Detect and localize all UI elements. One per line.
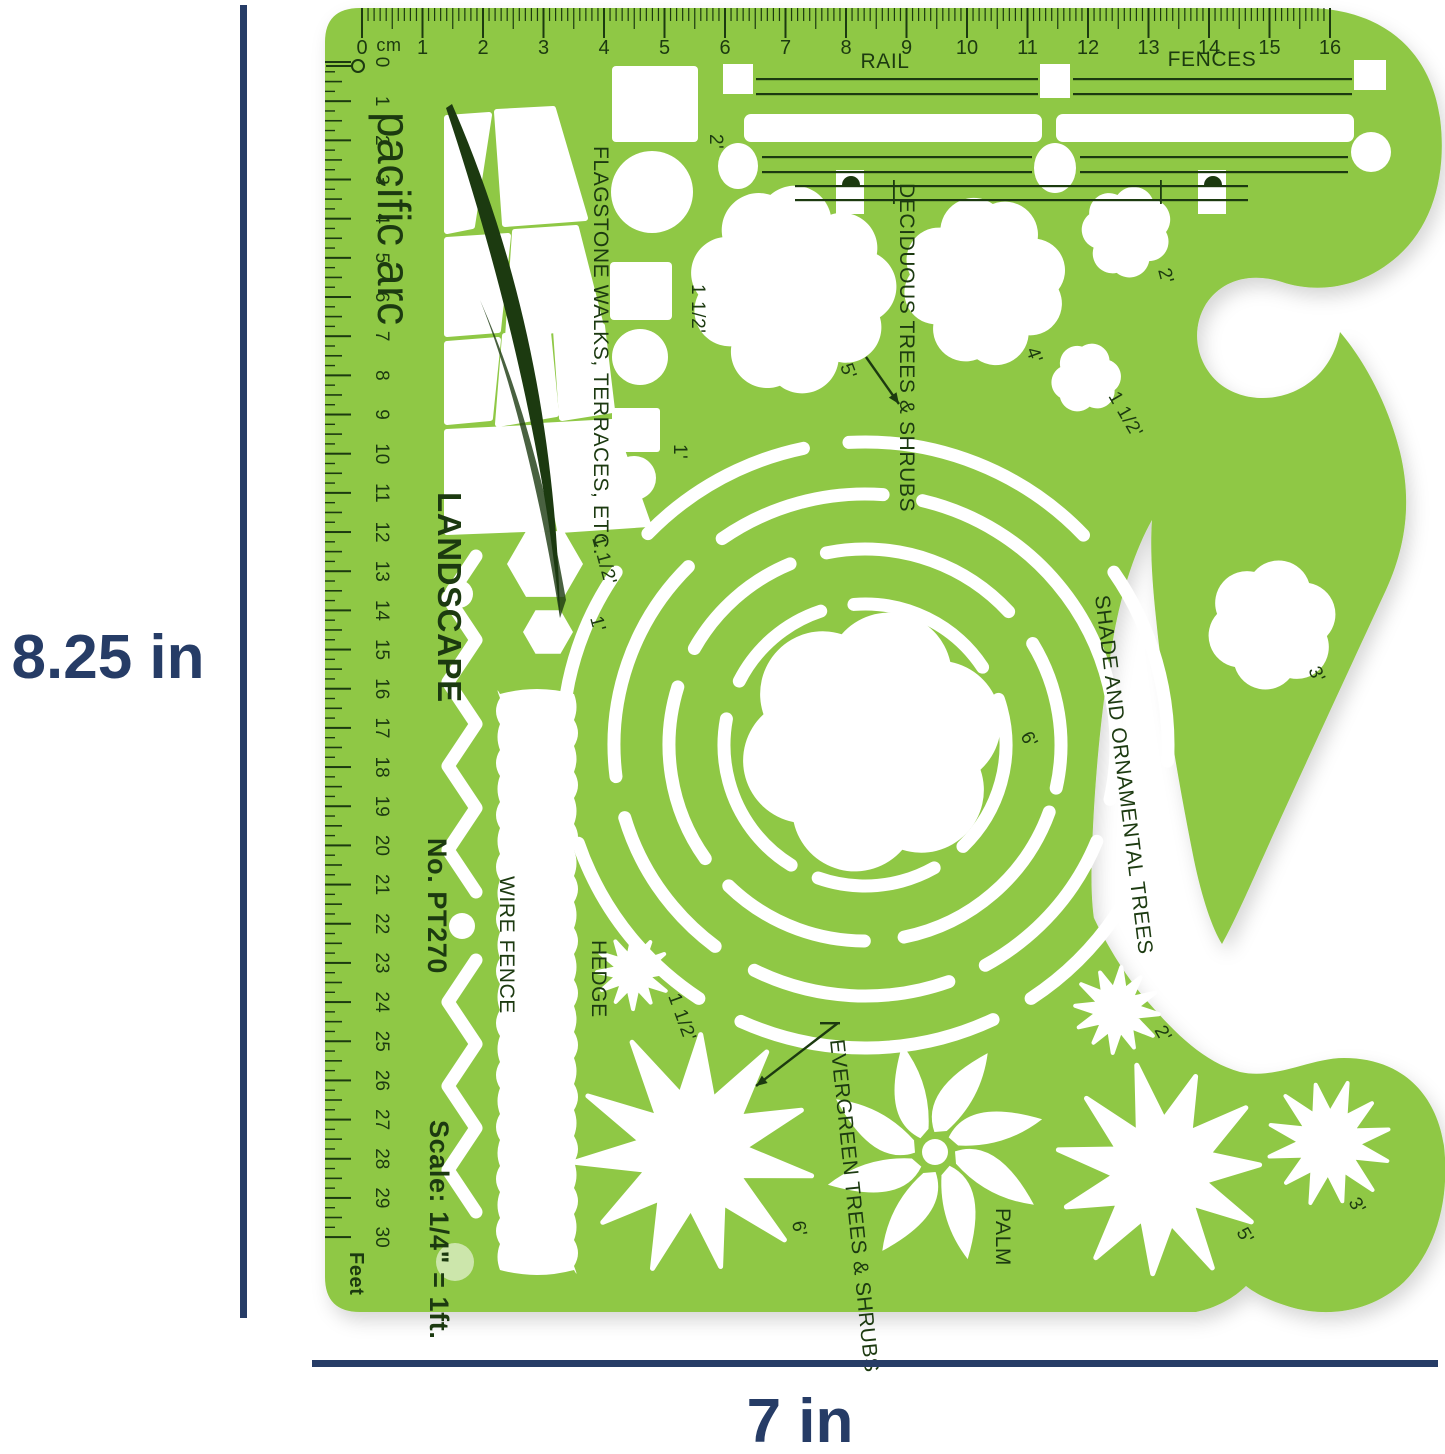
ruler-number: 6 xyxy=(719,37,730,59)
scale-note: Scale: 1/4" = 1ft. xyxy=(424,1120,454,1339)
ruler-number: 12 xyxy=(371,521,392,542)
ruler-number: 30 xyxy=(371,1227,392,1248)
ruler-number: 8 xyxy=(371,370,392,381)
ruler-number: 3 xyxy=(538,37,549,59)
hedge-label: HEDGE xyxy=(587,940,610,1018)
ruler-number: 1 xyxy=(371,96,392,107)
ruler-number: 7 xyxy=(780,37,791,59)
width-dimension-line xyxy=(312,1360,1438,1367)
wire-fence-label: WIRE FENCE xyxy=(495,876,518,1014)
ruler-number: 10 xyxy=(956,37,978,59)
series-label: LANDSCAPE xyxy=(431,492,468,703)
ruler-number: 13 xyxy=(1137,37,1159,59)
ruler-number: 1 xyxy=(417,37,428,59)
ruler-number: 22 xyxy=(371,913,392,934)
template-photo: 0123456789101112131415160123456789101112… xyxy=(0,0,1445,1454)
ruler-number: 23 xyxy=(371,952,392,973)
ruler-number: 11 xyxy=(1017,37,1038,59)
size-flagstone-square: 2' xyxy=(705,134,726,149)
ruler-number: 18 xyxy=(371,756,392,777)
ruler-number: 10 xyxy=(371,443,392,464)
ruler-number: 24 xyxy=(371,992,392,1014)
ruler-number: 15 xyxy=(371,639,392,660)
feet-unit-label: Feet xyxy=(345,1252,367,1296)
ruler-number: 29 xyxy=(371,1187,392,1208)
ruler-number: 8 xyxy=(840,37,851,59)
ruler-number: 0 xyxy=(356,37,367,59)
ruler-number: 9 xyxy=(371,409,392,420)
cm-unit-label: cm xyxy=(376,35,401,55)
ruler-number: 13 xyxy=(371,561,392,582)
brand-logo: pacific arc xyxy=(368,112,420,326)
ruler-number: 20 xyxy=(371,835,392,856)
ruler-number: 21 xyxy=(371,874,392,895)
deciduous-label: DECIDUOUS TREES & SHRUBS xyxy=(895,183,918,512)
width-dimension-label: 7 in xyxy=(747,1387,854,1454)
ruler-number: 27 xyxy=(371,1109,392,1130)
ruler-number: 5 xyxy=(659,37,670,59)
ruler-number: 17 xyxy=(371,717,392,738)
ruler-number: 25 xyxy=(371,1031,392,1052)
ruler-number: 28 xyxy=(371,1148,392,1169)
ruler-number: 26 xyxy=(371,1070,392,1091)
ruler-number: 15 xyxy=(1258,37,1280,59)
palm-label: PALM xyxy=(991,1208,1014,1266)
ruler-number: 16 xyxy=(371,678,392,699)
ruler-number: 2 xyxy=(477,37,488,59)
ruler-number: 0 xyxy=(371,57,392,68)
flagstone-label: FLAGSTONE WALKS, TERRACES, ETC. xyxy=(589,146,612,555)
ruler-number: 11 xyxy=(371,483,392,503)
model-number: No. PT270 xyxy=(422,838,452,974)
ruler-number: 4 xyxy=(598,37,609,59)
ruler-number: 19 xyxy=(371,796,392,817)
height-dimension-line xyxy=(240,5,247,1318)
product-image: 0123456789101112131415160123456789101112… xyxy=(0,0,1445,1454)
rail-label: RAIL xyxy=(860,50,909,73)
ruler-number: 7 xyxy=(371,331,392,342)
ruler-number: 14 xyxy=(371,600,392,622)
ruler-number: 16 xyxy=(1319,37,1341,59)
fences-label: FENCES xyxy=(1168,48,1257,71)
size-flagstone-mid: 1 1/2' xyxy=(687,284,708,334)
ruler-number: 12 xyxy=(1077,37,1099,59)
height-dimension-label: 8.25 in xyxy=(12,623,205,692)
size-flagstone-small: 1' xyxy=(669,444,690,459)
